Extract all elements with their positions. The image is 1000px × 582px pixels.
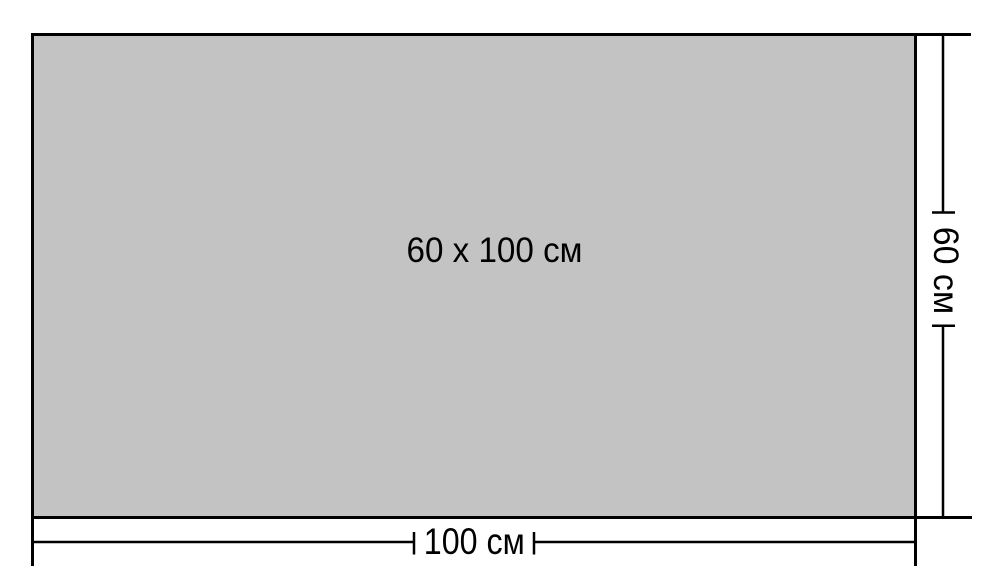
svg-text:60 x 100 см: 60 x 100 см: [407, 230, 583, 270]
svg-text:60 см: 60 см: [926, 227, 966, 315]
svg-text:100 см: 100 см: [424, 520, 525, 562]
